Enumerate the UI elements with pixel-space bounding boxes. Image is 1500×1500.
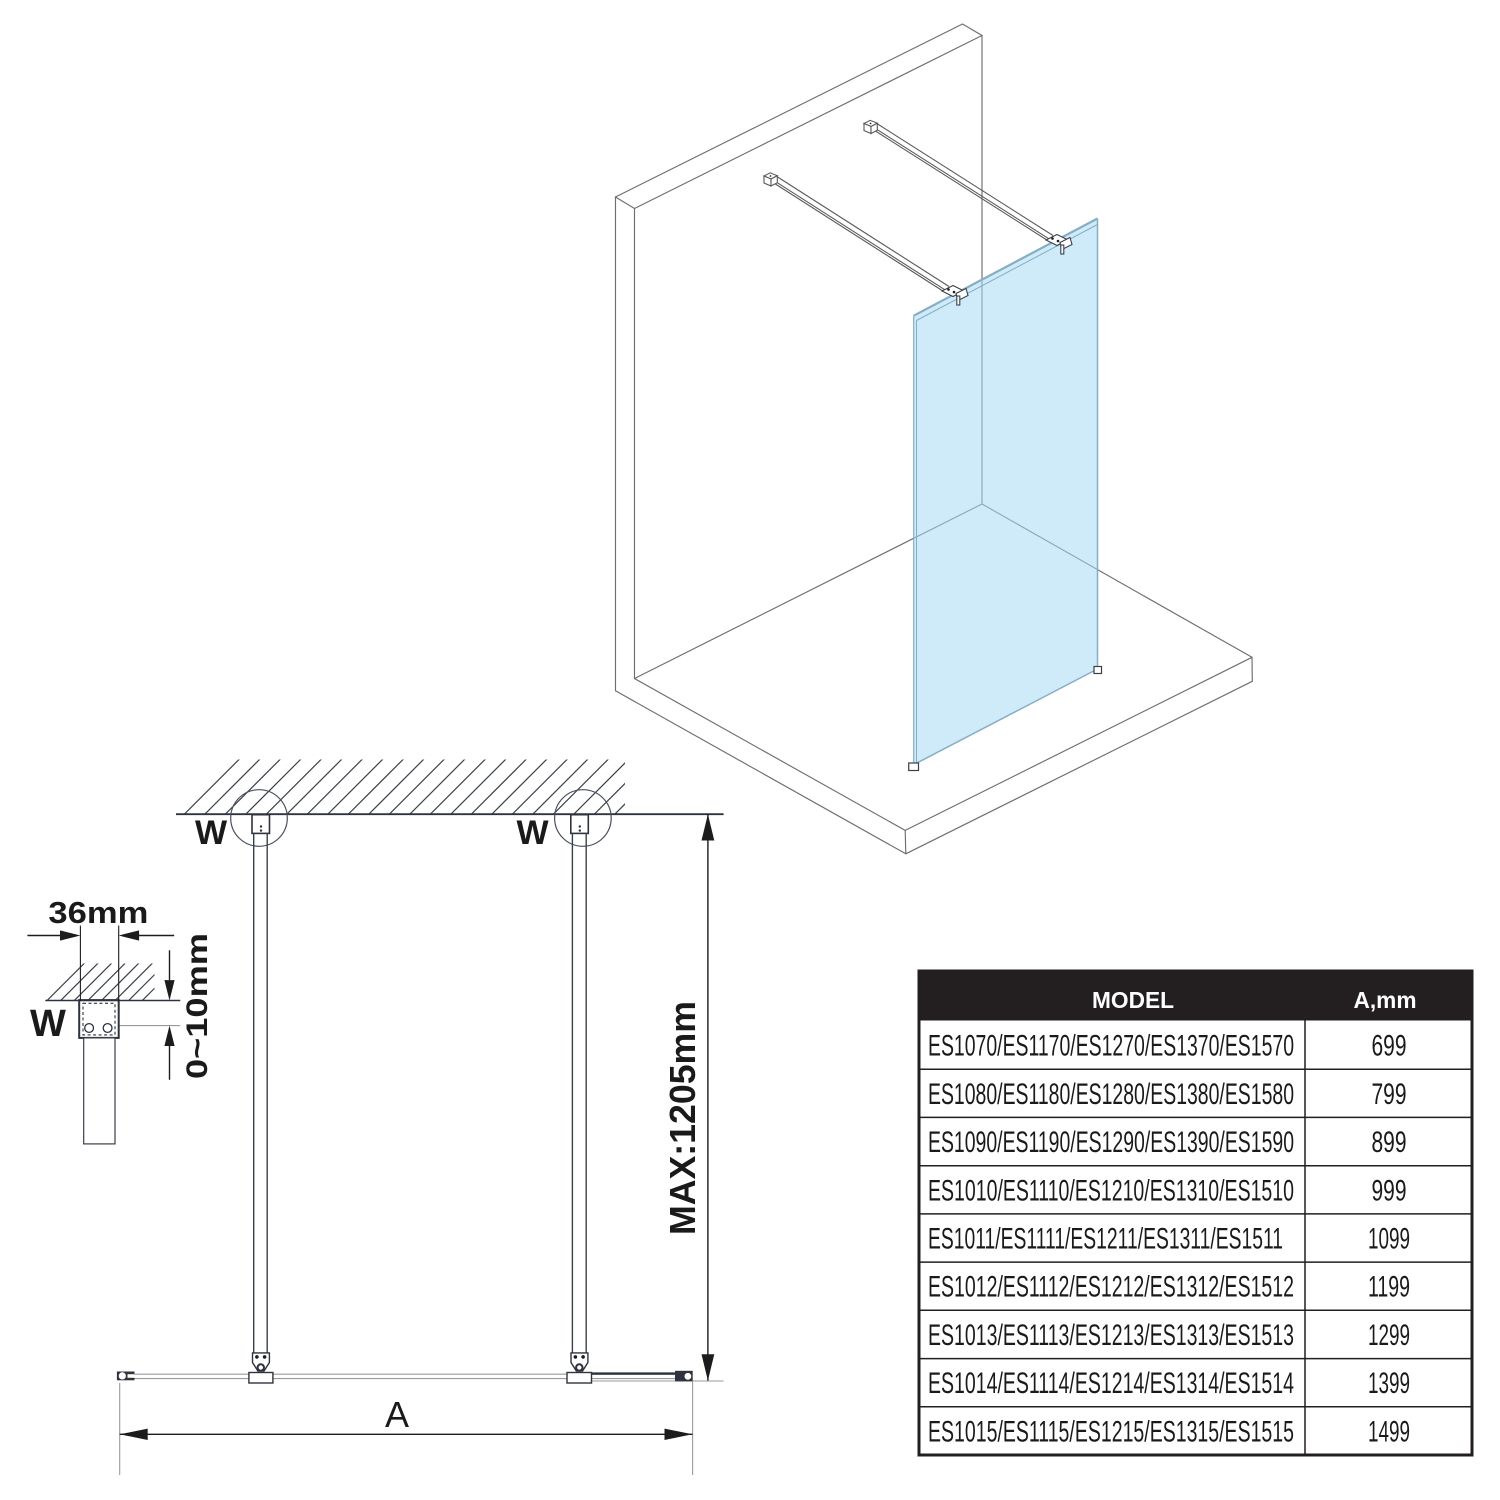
- svg-text:ES1014/ES1114/ES1214/ES1314/ES: ES1014/ES1114/ES1214/ES1314/ES1514: [928, 1367, 1294, 1400]
- svg-text:ES1090/ES1190/ES1290/ES1390/ES: ES1090/ES1190/ES1290/ES1390/ES1590: [928, 1126, 1294, 1159]
- svg-text:ES1015/ES1115/ES1215/ES1315/ES: ES1015/ES1115/ES1215/ES1315/ES1515: [928, 1415, 1294, 1448]
- svg-text:1499: 1499: [1368, 1415, 1410, 1448]
- svg-text:W: W: [517, 814, 550, 852]
- svg-text:36mm: 36mm: [48, 895, 148, 930]
- svg-text:ES1080/ES1180/ES1280/ES1380/ES: ES1080/ES1180/ES1280/ES1380/ES1580: [928, 1078, 1294, 1111]
- svg-text:1399: 1399: [1368, 1367, 1410, 1400]
- svg-text:799: 799: [1372, 1078, 1407, 1111]
- svg-text:0~10mm: 0~10mm: [181, 933, 214, 1079]
- svg-text:A: A: [385, 1394, 409, 1435]
- svg-text:ES1070/ES1170/ES1270/ES1370/ES: ES1070/ES1170/ES1270/ES1370/ES1570: [928, 1030, 1294, 1063]
- svg-text:ES1011/ES1111/ES1211/ES1311/ES: ES1011/ES1111/ES1211/ES1311/ES1511: [928, 1223, 1283, 1256]
- svg-text:ES1010/ES1110/ES1210/ES1310/ES: ES1010/ES1110/ES1210/ES1310/ES1510: [928, 1174, 1294, 1207]
- svg-text:MODEL: MODEL: [1092, 987, 1174, 1013]
- svg-text:699: 699: [1372, 1030, 1407, 1063]
- svg-text:MAX:1205mm: MAX:1205mm: [662, 1001, 703, 1235]
- svg-text:1099: 1099: [1368, 1223, 1410, 1256]
- svg-text:W: W: [195, 814, 228, 852]
- svg-text:899: 899: [1372, 1126, 1407, 1159]
- svg-text:1199: 1199: [1368, 1271, 1410, 1304]
- svg-text:ES1012/ES1112/ES1212/ES1312/ES: ES1012/ES1112/ES1212/ES1312/ES1512: [928, 1271, 1294, 1304]
- svg-text:ES1013/ES1113/ES1213/ES1313/ES: ES1013/ES1113/ES1213/ES1313/ES1513: [928, 1319, 1294, 1352]
- svg-text:A,mm: A,mm: [1354, 987, 1417, 1013]
- svg-text:W: W: [30, 1003, 66, 1045]
- svg-text:1299: 1299: [1368, 1319, 1410, 1352]
- svg-text:999: 999: [1372, 1174, 1407, 1207]
